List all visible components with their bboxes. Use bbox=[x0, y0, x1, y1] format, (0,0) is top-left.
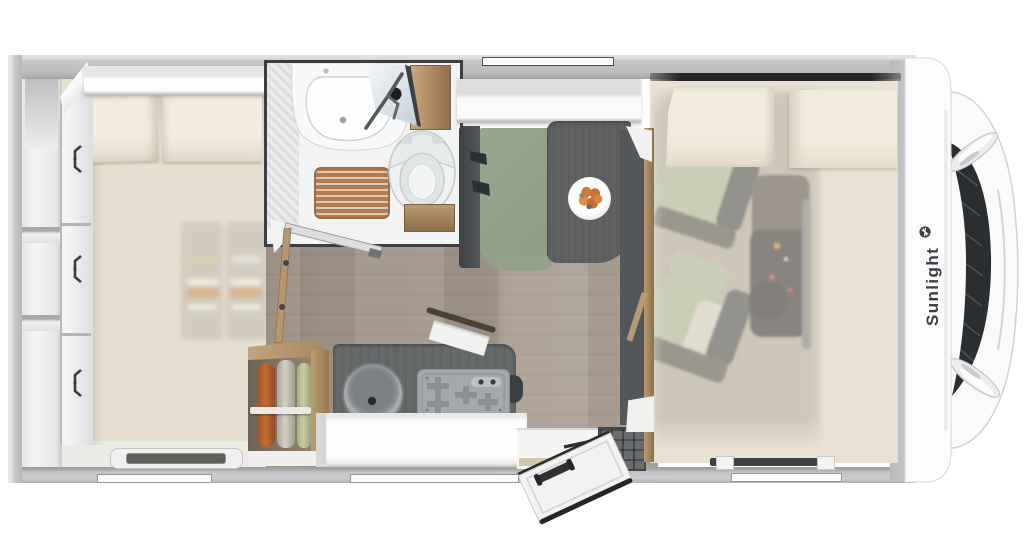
svg-text:Sunlight: Sunlight bbox=[923, 247, 942, 326]
